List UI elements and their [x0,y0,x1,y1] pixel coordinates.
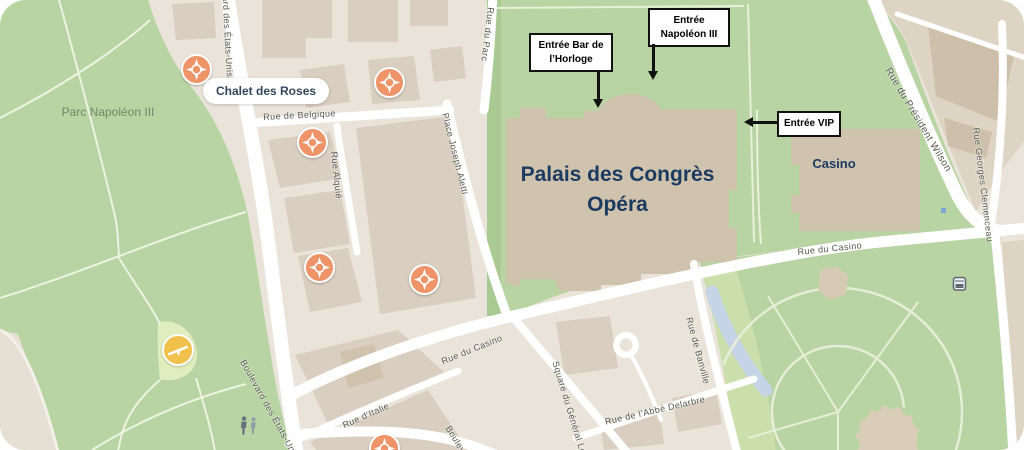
seesaw-icon [164,336,192,364]
callout-entree-bar-horloge: Entrée Bar de l’Horloge [529,33,613,72]
casino-label: Casino [794,156,874,171]
palais-des-congres-label: Palais des Congrès Opéra [505,160,730,221]
compass-star-icon [299,129,326,156]
arrow-vip [753,121,779,124]
bus-icon [952,276,967,292]
pedestrians-icon [238,416,262,436]
arrow-bar-horloge [597,71,600,100]
arrow-napoleon [652,44,655,72]
poi-marker-3[interactable] [297,127,328,158]
scalloped-garden [856,406,920,450]
poi-marker-2[interactable] [374,67,405,98]
compass-star-icon [306,254,333,281]
arrowhead-bar-horloge [593,99,603,108]
map-geometry [0,0,1024,450]
arrowhead-vip [744,117,753,127]
map-canvas[interactable]: Boulevard des États-Unis Boulevard des É… [0,0,1024,450]
callout-entree-napoleon: Entrée Napoléon III [648,8,730,47]
poi-marker-4[interactable] [304,252,335,283]
casino-building [791,129,920,231]
compass-star-icon [371,435,398,450]
poi-marker-5[interactable] [409,264,440,295]
compass-star-icon [376,69,403,96]
arrowhead-napoleon [648,71,658,80]
callout-entree-vip: Entrée VIP [777,111,841,137]
chalet-des-roses-pill[interactable]: Chalet des Roses [203,78,329,104]
playground-marker[interactable] [162,334,194,366]
poi-marker-6[interactable] [369,433,400,450]
compass-star-icon [183,56,210,83]
park-label: Parc Napoléon III [48,105,168,121]
compass-star-icon [411,266,438,293]
